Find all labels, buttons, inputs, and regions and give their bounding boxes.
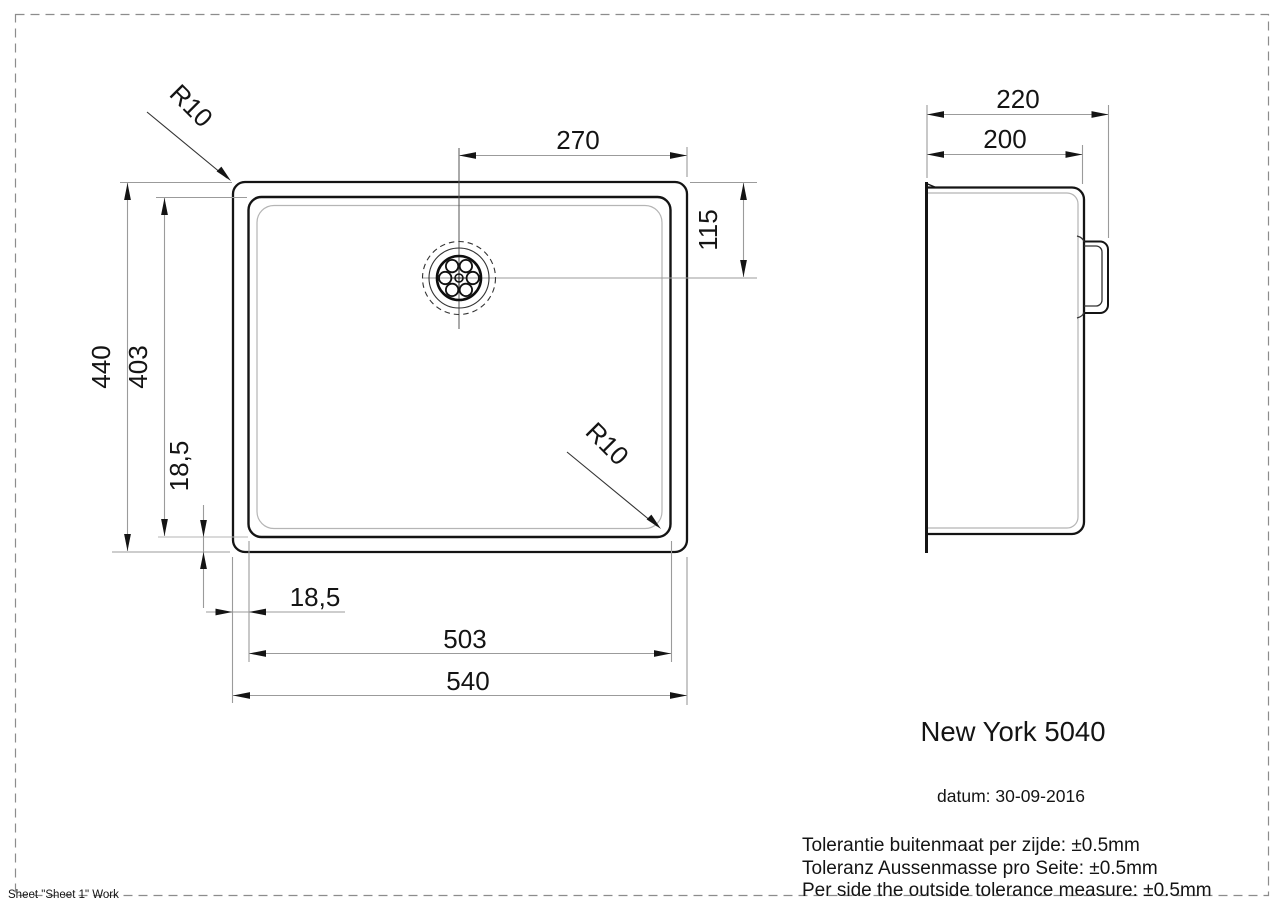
radius-callout-top-left: R10 [147,78,231,181]
dim-440: 440 [86,183,232,553]
side-body-inner-line [928,193,1078,528]
date-label: datum: 30-09-2016 [937,786,1085,806]
strainer-hole [460,260,472,272]
dim-label-115: 115 [693,209,723,250]
dim-115: 115 [690,183,757,278]
tolerance-line-de: Toleranz Aussenmasse pro Seite: ±0.5mm [802,858,1158,879]
dim-label-270: 270 [556,125,599,155]
dim-label-220: 220 [996,84,1039,114]
dim-label-403: 403 [123,345,153,388]
drain-outlet-inner [1084,246,1102,306]
page-border [16,15,1269,896]
tolerance-line-en: Per side the outside tolerance measure: … [802,880,1212,901]
dim-label-r10-br: R10 [580,416,635,471]
dim-200: 200 [927,124,1083,184]
dim-label-440: 440 [86,345,116,388]
tolerance-line-nl: Tolerantie buitenmaat per zijde: ±0.5mm [802,835,1140,856]
dim-18-5-vertical: 18,5 [164,441,207,608]
dim-label-503: 503 [443,624,486,654]
strainer-hole [460,284,472,296]
sink-outer-outline [233,182,687,552]
dim-label-18-5-h: 18,5 [290,582,341,612]
dim-18-5-horizontal: 18,5 [206,541,345,703]
top-view: 270 115 440 403 [86,78,757,705]
strainer-hole [446,260,458,272]
dim-270: 270 [459,125,687,177]
strainer-hole [446,284,458,296]
radius-callout-bottom-right: R10 [567,416,661,529]
dim-label-200: 200 [983,124,1026,154]
title-block: New York 5040 datum: 30-09-2016 Tolerant… [802,716,1212,901]
dim-label-18-5-v: 18,5 [164,441,194,492]
side-view: 220 200 [927,84,1109,553]
drawing-sheet: 270 115 440 403 [0,0,1284,916]
sheet-label: Sheet "Sheet 1" Work [8,889,119,901]
dim-label-540: 540 [446,666,489,696]
dim-220: 220 [927,84,1109,238]
model-title: New York 5040 [921,716,1106,747]
cad-drawing: 270 115 440 403 [0,0,1284,916]
side-body-outline [928,188,1084,535]
dim-label-r10-tl: R10 [164,78,219,133]
drain-outlet-outer [1084,242,1108,314]
